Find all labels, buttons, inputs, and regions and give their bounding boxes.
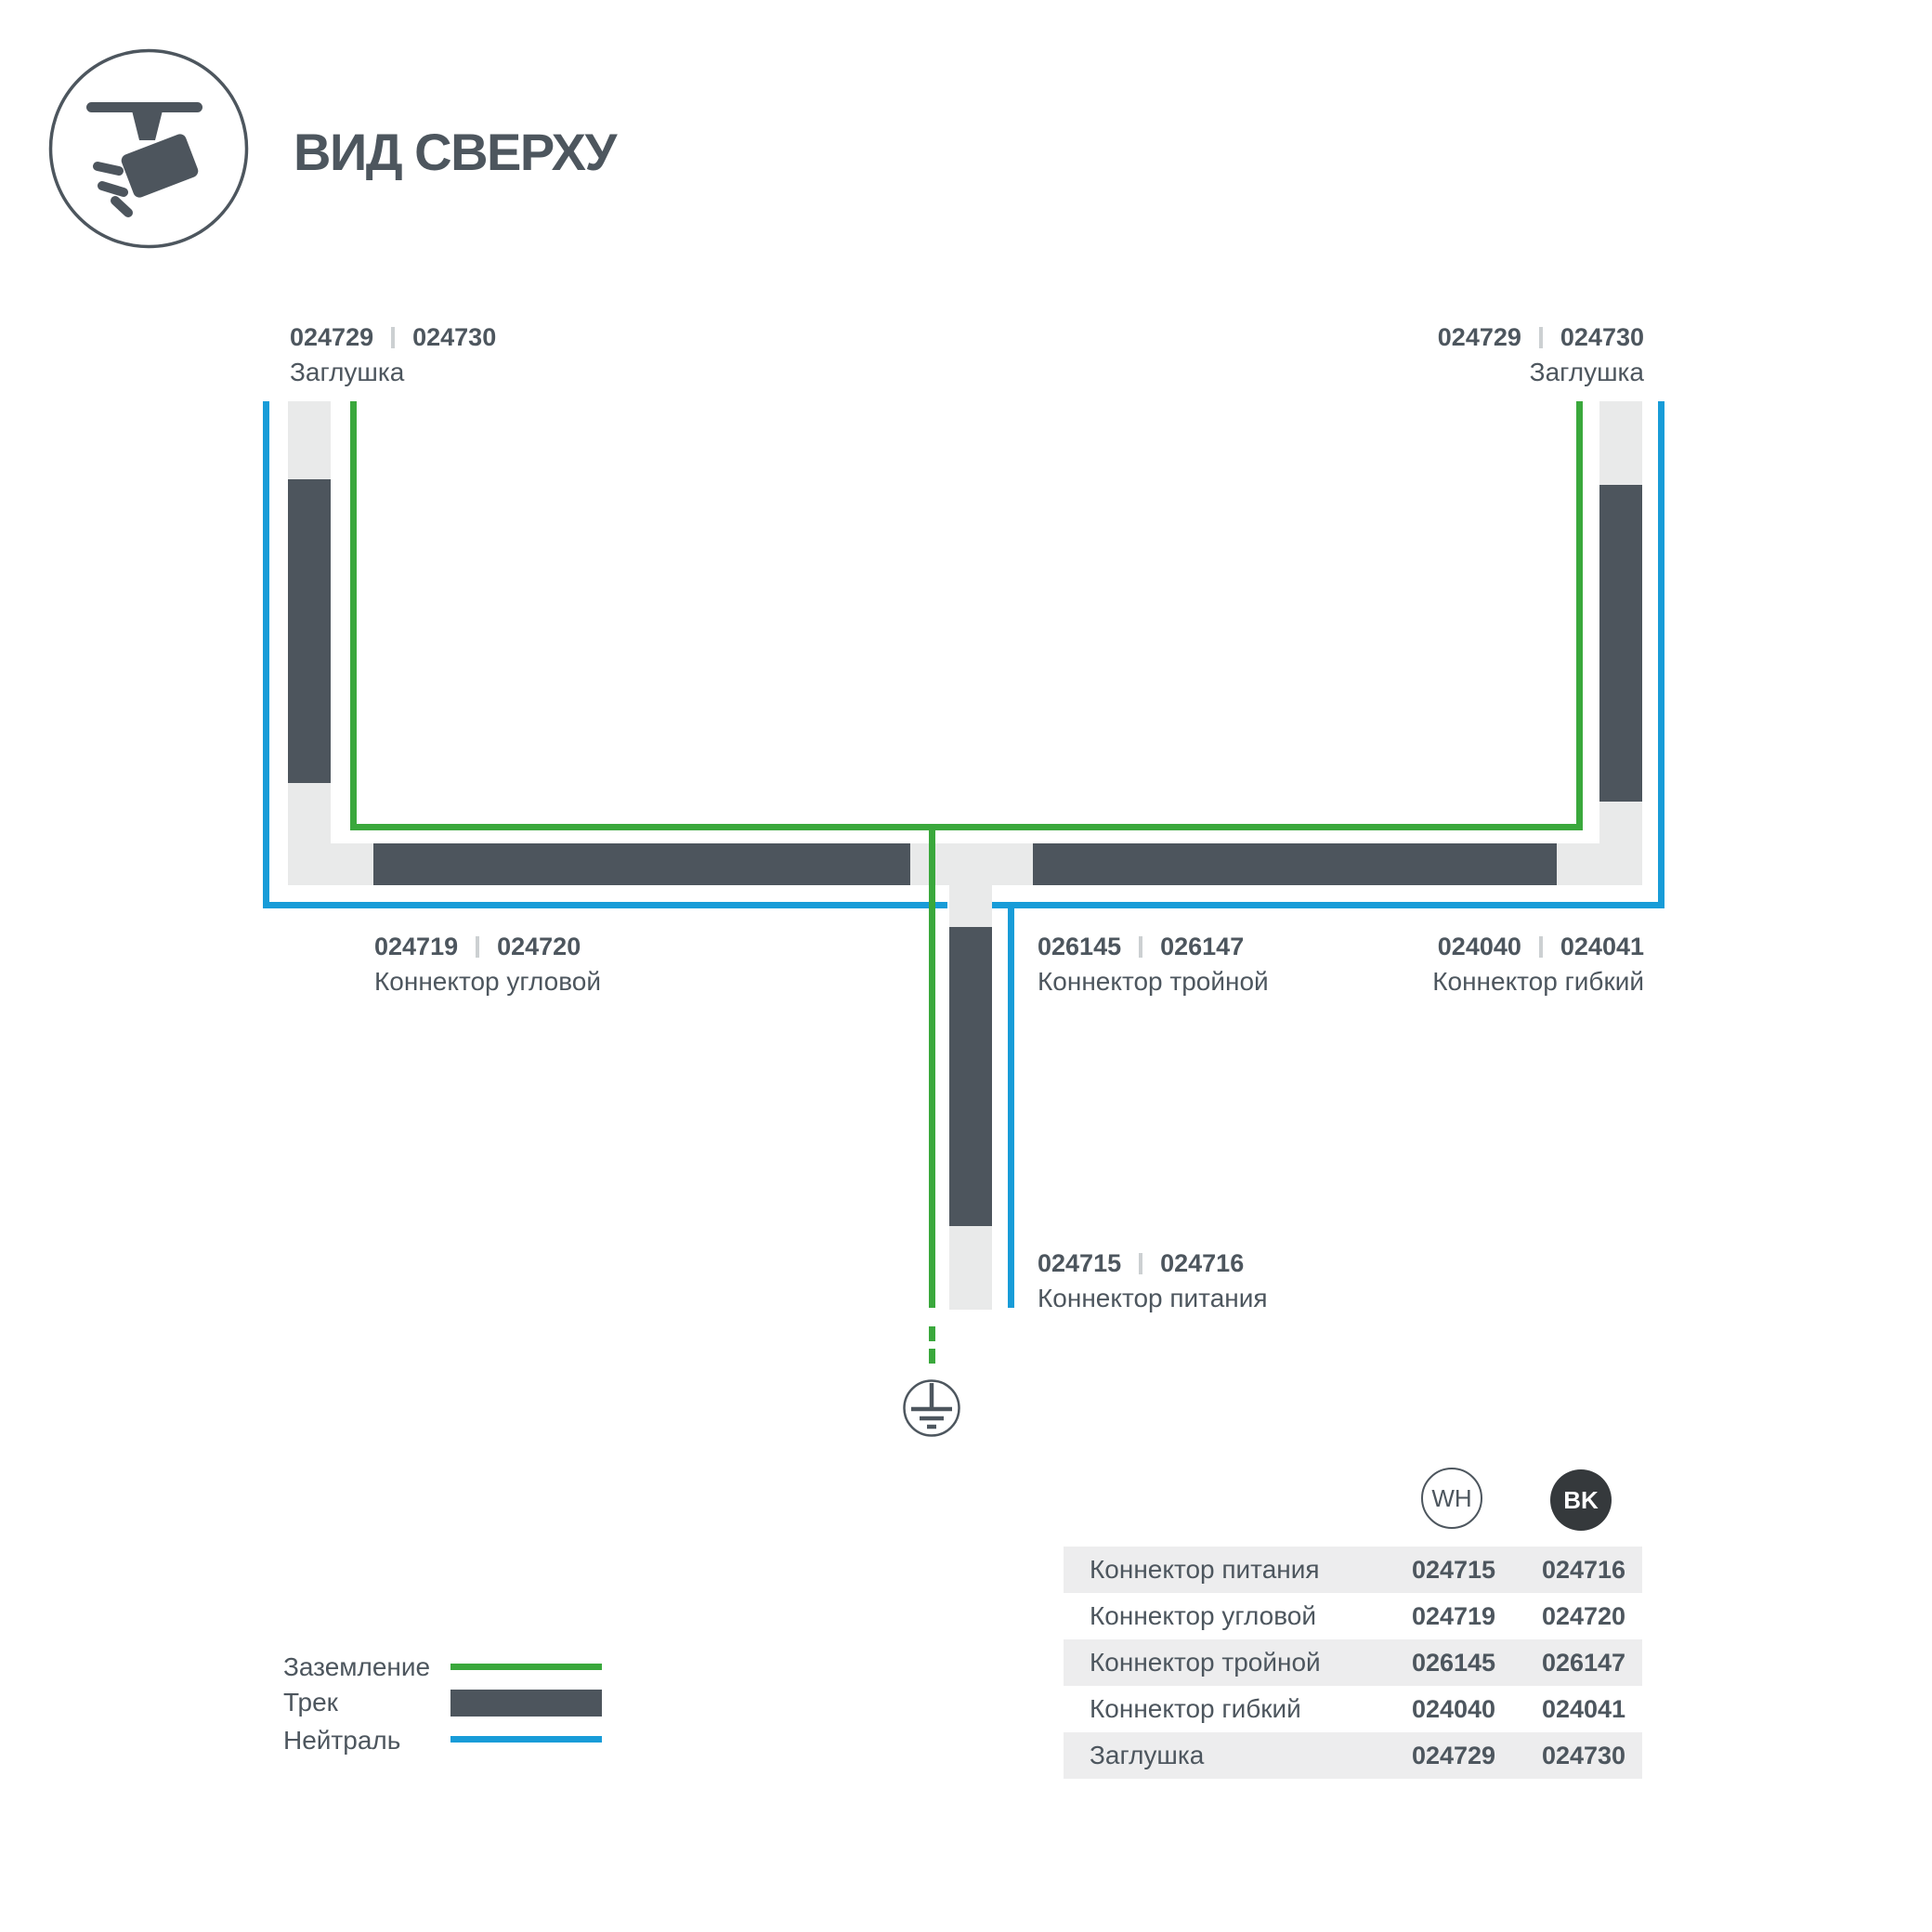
track-segment-horizontal-right bbox=[1033, 843, 1557, 885]
label-codes: 024729 024730 bbox=[1438, 325, 1644, 350]
row-code-wh: 024719 bbox=[1398, 1593, 1509, 1639]
code-wh: 024715 bbox=[1038, 1251, 1121, 1276]
neutral-line-bottom-left bbox=[263, 902, 947, 908]
label-name: Коннектор гибкий bbox=[1432, 969, 1644, 995]
row-name: Коннектор угловой bbox=[1090, 1593, 1316, 1639]
label-codes: 026145 026147 bbox=[1038, 934, 1269, 959]
end-cap-left bbox=[288, 401, 331, 479]
row-code-bk: 024716 bbox=[1528, 1547, 1639, 1593]
row-code-bk: 024041 bbox=[1528, 1686, 1639, 1732]
neutral-line-right-vertical bbox=[1658, 401, 1664, 908]
table-row: Коннектор угловой 024719 024720 bbox=[1064, 1593, 1642, 1639]
code-bk: 026147 bbox=[1160, 934, 1244, 959]
row-code-wh: 024715 bbox=[1398, 1547, 1509, 1593]
ground-line-feed-drop bbox=[929, 824, 935, 1308]
end-cap-right bbox=[1599, 401, 1642, 485]
ground-line-dash-2 bbox=[929, 1349, 935, 1364]
code-divider bbox=[1539, 327, 1543, 348]
ground-line-swatch bbox=[450, 1664, 602, 1670]
color-column-bk-badge: BK bbox=[1550, 1469, 1612, 1531]
corner-connector-right-vertical-arm bbox=[1599, 802, 1642, 885]
label-name: Заглушка bbox=[1438, 359, 1644, 385]
neutral-line-bottom-right bbox=[992, 902, 1664, 908]
code-divider bbox=[391, 327, 395, 348]
label-name: Коннектор тройной bbox=[1038, 969, 1269, 995]
neutral-line-feed-drop bbox=[1008, 902, 1014, 1308]
table-row: Коннектор тройной 026145 026147 bbox=[1064, 1639, 1642, 1686]
ground-line-horizontal bbox=[350, 824, 1583, 830]
code-bk: 024720 bbox=[497, 934, 581, 959]
color-column-wh-badge: WH bbox=[1421, 1468, 1482, 1529]
row-code-wh: 024040 bbox=[1398, 1686, 1509, 1732]
label-name: Коннектор питания bbox=[1038, 1286, 1268, 1312]
ground-line-dash-1 bbox=[929, 1326, 935, 1341]
track-segment-horizontal-left bbox=[373, 843, 910, 885]
code-wh: 024729 bbox=[290, 325, 373, 350]
track-spotlight-top-view-icon bbox=[48, 48, 249, 249]
code-divider bbox=[1539, 936, 1543, 958]
label-corner-connector: 024719 024720 Коннектор угловой bbox=[374, 934, 601, 995]
row-name: Коннектор питания bbox=[1090, 1547, 1320, 1593]
table-row: Заглушка 024729 024730 bbox=[1064, 1732, 1642, 1779]
row-code-wh: 026145 bbox=[1398, 1639, 1509, 1686]
code-divider bbox=[1139, 1253, 1142, 1274]
row-code-bk: 024720 bbox=[1528, 1593, 1639, 1639]
code-wh: 024729 bbox=[1438, 325, 1521, 350]
label-triple-connector: 026145 026147 Коннектор тройной bbox=[1038, 934, 1269, 995]
label-codes: 024719 024720 bbox=[374, 934, 601, 959]
neutral-line-left-vertical bbox=[263, 401, 269, 908]
code-divider bbox=[476, 936, 479, 958]
code-wh: 026145 bbox=[1038, 934, 1121, 959]
power-connector bbox=[949, 1226, 992, 1310]
code-wh: 024040 bbox=[1438, 934, 1521, 959]
code-bk: 024716 bbox=[1160, 1251, 1244, 1276]
row-name: Коннектор гибкий bbox=[1090, 1686, 1301, 1732]
label-name: Заглушка bbox=[290, 359, 496, 385]
table-row: Коннектор питания 024715 024716 bbox=[1064, 1547, 1642, 1593]
code-bk: 024730 bbox=[1560, 325, 1644, 350]
row-name: Коннектор тройной bbox=[1090, 1639, 1321, 1686]
label-end-cap-right: 024729 024730 Заглушка bbox=[1438, 325, 1644, 385]
legend-label-track: Трек bbox=[283, 1690, 338, 1716]
label-end-cap-left: 024729 024730 Заглушка bbox=[290, 325, 496, 385]
ground-line-right-vertical bbox=[1576, 401, 1583, 830]
label-codes: 024040 024041 bbox=[1432, 934, 1644, 959]
neutral-line-swatch bbox=[450, 1736, 602, 1743]
table-row: Коннектор гибкий 024040 024041 bbox=[1064, 1686, 1642, 1732]
earth-ground-icon bbox=[902, 1378, 961, 1438]
track-segment-right-vertical bbox=[1599, 485, 1642, 802]
track-bar-swatch bbox=[450, 1690, 602, 1717]
track-segment-stem-vertical bbox=[949, 927, 992, 1226]
row-code-wh: 024729 bbox=[1398, 1732, 1509, 1779]
code-bk: 024730 bbox=[412, 325, 496, 350]
code-divider bbox=[1139, 936, 1142, 958]
code-bk: 024041 bbox=[1560, 934, 1644, 959]
page-title: ВИД СВЕРХУ bbox=[294, 126, 616, 178]
row-code-bk: 024730 bbox=[1528, 1732, 1639, 1779]
legend-label-ground: Заземление bbox=[283, 1654, 430, 1680]
t-connector-stem bbox=[949, 885, 992, 927]
ground-line-left-vertical bbox=[350, 401, 357, 830]
label-power-connector: 024715 024716 Коннектор питания bbox=[1038, 1251, 1268, 1312]
code-wh: 024719 bbox=[374, 934, 458, 959]
corner-connector-left-horizontal-arm bbox=[288, 843, 373, 885]
page: ВИД СВЕРХУ 024729 bbox=[0, 0, 1932, 1932]
track-segment-left-vertical bbox=[288, 479, 331, 783]
label-codes: 024729 024730 bbox=[290, 325, 496, 350]
legend-label-neutral: Нейтраль bbox=[283, 1728, 400, 1754]
row-name: Заглушка bbox=[1090, 1732, 1204, 1779]
row-code-bk: 026147 bbox=[1528, 1639, 1639, 1686]
label-codes: 024715 024716 bbox=[1038, 1251, 1268, 1276]
label-name: Коннектор угловой bbox=[374, 969, 601, 995]
label-flexible-connector: 024040 024041 Коннектор гибкий bbox=[1432, 934, 1644, 995]
